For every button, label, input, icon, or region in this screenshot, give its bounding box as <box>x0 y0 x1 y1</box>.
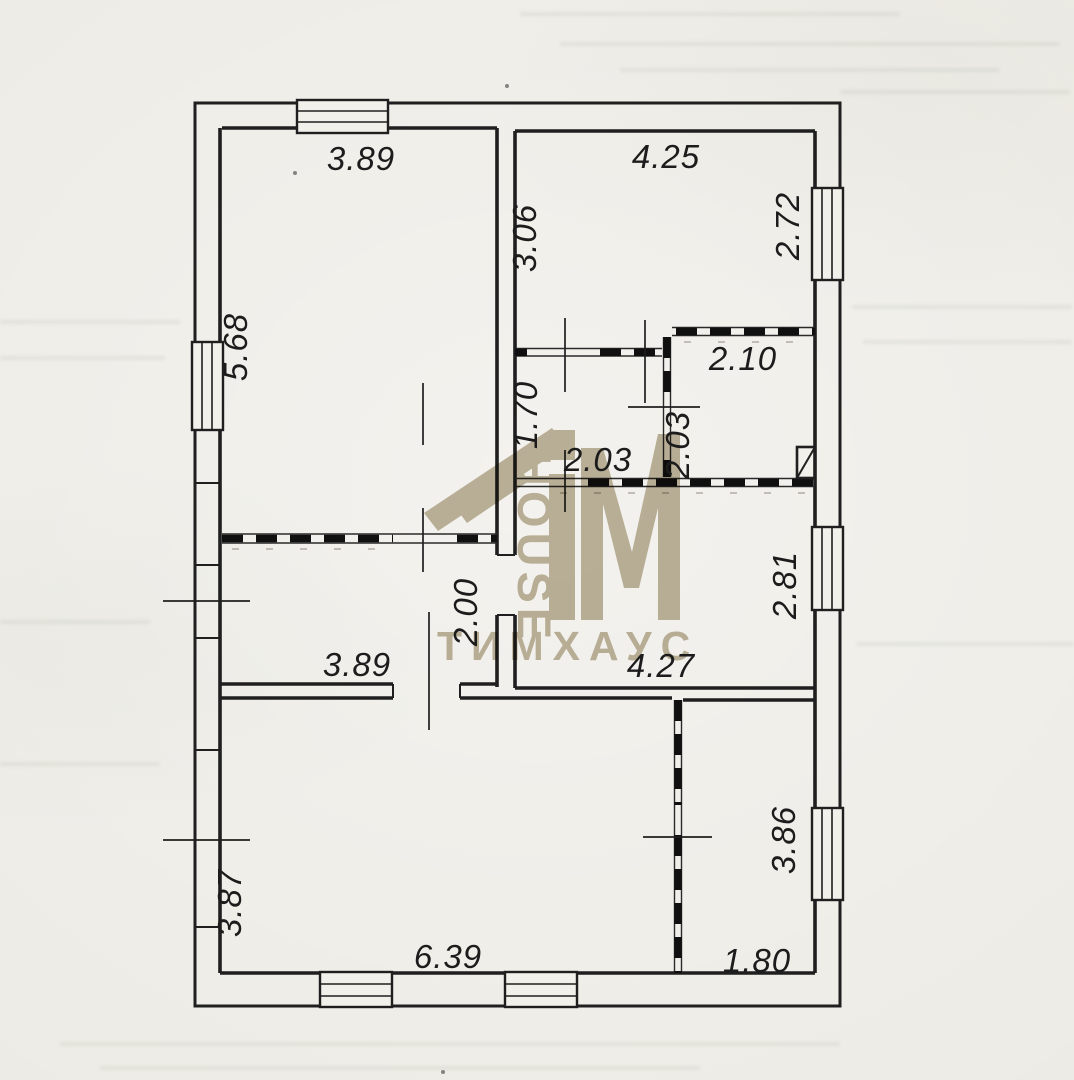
window-bottom-wall-right <box>505 972 577 1007</box>
dim-room-mid-right-height: 2.81 <box>766 551 803 620</box>
left-wall-ticks <box>195 483 220 927</box>
dim-hall-right-height: 1.70 <box>507 381 544 449</box>
window-bottom-wall-left <box>320 972 392 1007</box>
dim-room-top-right-height-right: 2.72 <box>769 192 806 261</box>
wall-bottom-rooms-top-face <box>220 698 815 700</box>
dim-room-bottom-right-width: 1.80 <box>723 942 791 979</box>
door-opening-caps-hall <box>393 684 460 698</box>
dim-room-bottom-left-height: 3.87 <box>211 868 248 937</box>
dim-room-bottom-right-height: 3.86 <box>765 806 802 874</box>
dim-hall-left-height: 2.00 <box>447 578 484 647</box>
dim-bathroom-width: 2.10 <box>708 340 777 377</box>
vent-duct-symbol <box>797 447 815 478</box>
dim-room-top-left-height: 5.68 <box>217 313 254 381</box>
watermark-house-text: HOUSE <box>508 452 561 644</box>
dim-room-top-right-width: 4.25 <box>632 138 700 175</box>
dim-hall-right-width: 2.03 <box>563 441 632 478</box>
dim-room-top-right-height-left: 3.06 <box>506 204 543 272</box>
dim-bathroom-height: 2.03 <box>659 411 696 480</box>
partition-left-hall <box>222 534 497 549</box>
dim-room-top-left-width: 3.89 <box>327 140 395 177</box>
window-right-wall-middle <box>812 527 843 610</box>
window-top-wall <box>297 100 388 133</box>
window-right-wall-top <box>812 188 843 280</box>
scanned-paper: HOUSE ТИМХАУС 3.89 5.68 4.25 3.06 2.72 2… <box>0 0 1074 1080</box>
dim-room-mid-right-width: 4.27 <box>627 647 696 684</box>
floor-plan-svg: HOUSE ТИМХАУС 3.89 5.68 4.25 3.06 2.72 2… <box>0 0 1074 1080</box>
dim-room-bottom-left-width: 6.39 <box>414 938 482 975</box>
partition-hall-top <box>515 349 662 357</box>
window-right-wall-bottom <box>812 808 843 900</box>
dim-hall-left-width: 3.89 <box>323 646 391 683</box>
